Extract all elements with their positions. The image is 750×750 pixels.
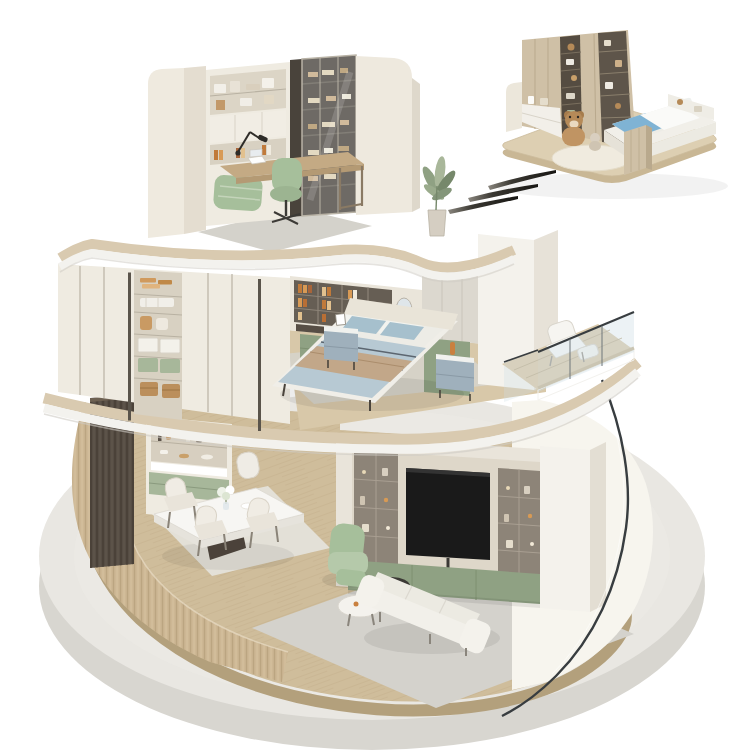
photo-frame xyxy=(335,314,345,326)
study-right-wall xyxy=(356,56,420,215)
render-canvas xyxy=(0,0,750,750)
glass-display-cabinet xyxy=(302,55,356,216)
wicker-basket xyxy=(162,384,180,398)
amber-bottle xyxy=(450,342,455,355)
toy-bear xyxy=(568,44,575,51)
handbag xyxy=(140,316,152,330)
media-wall-column xyxy=(540,446,590,612)
bed-foot-panel xyxy=(624,125,652,175)
wicker-basket xyxy=(140,382,158,396)
wardrobe-open-shelves xyxy=(134,270,182,420)
top-floor-study xyxy=(60,55,514,281)
study-left-wall xyxy=(148,66,206,238)
display-shelves-right xyxy=(498,468,540,578)
isometric-home-render xyxy=(0,0,750,750)
kids-bedroom-module xyxy=(496,30,728,199)
module-left-wall xyxy=(506,82,522,132)
potted-plant xyxy=(420,155,459,236)
